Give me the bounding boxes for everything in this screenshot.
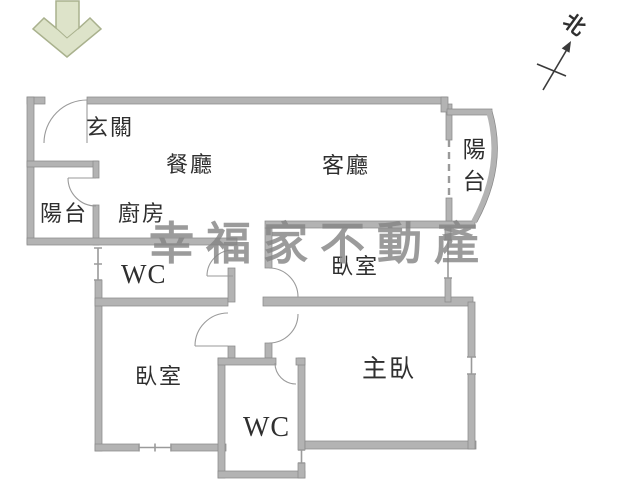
- room-label-balcony-right: 陽台: [459, 137, 483, 201]
- room-label-living: 客廳: [322, 154, 370, 177]
- floor-plan: 玄關 餐廳 客廳 廚房 陽台 陽台 WC 臥室 臥室 主臥 WC 北 幸福家不動…: [0, 0, 640, 480]
- room-label-wc-bottom: WC: [243, 413, 290, 442]
- room-label-master-bedroom: 主臥: [362, 357, 416, 383]
- room-label-dining: 餐廳: [166, 153, 214, 176]
- room-label-balcony-left: 陽台: [40, 202, 88, 225]
- watermark-text: 幸福家不動產: [149, 207, 491, 272]
- room-label-entry: 玄關: [86, 116, 134, 139]
- compass-icon: [537, 41, 571, 90]
- room-label-bedroom-lower: 臥室: [135, 365, 183, 388]
- entrance-arrow-icon: [33, 1, 101, 57]
